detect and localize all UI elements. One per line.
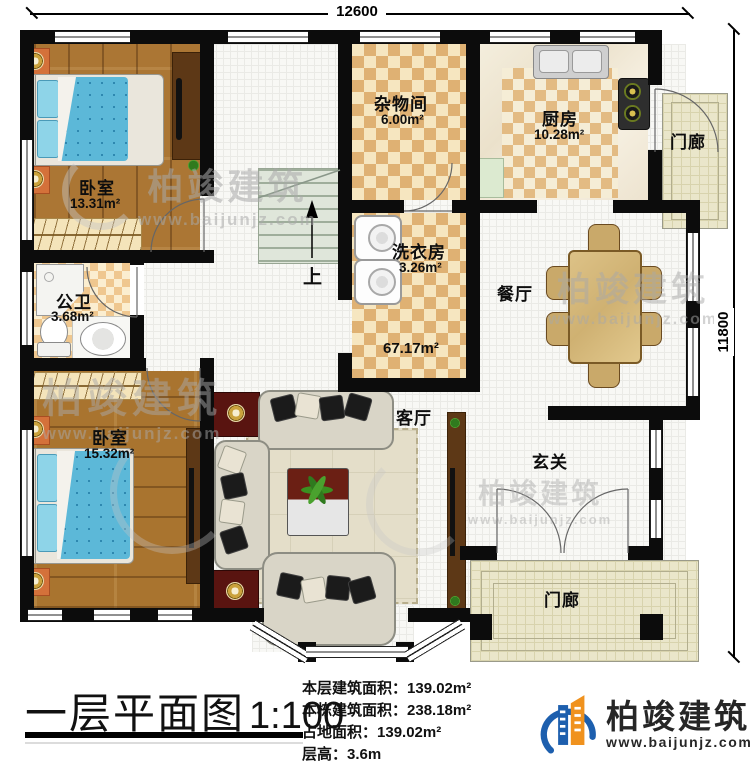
brand-logo: 柏竣建筑 www.baijunjz.com <box>540 686 750 764</box>
table-lamp <box>227 404 245 422</box>
dresser-tv <box>189 468 194 548</box>
stove-burner <box>624 83 641 100</box>
stat-row: 本层建筑面积：139.02m² <box>302 678 471 700</box>
stat-row: 层高：3.6m <box>302 744 471 766</box>
sofa-pillow <box>318 394 345 421</box>
porch-column-right <box>640 614 663 640</box>
stat-label: 本层建筑面积： <box>302 680 407 697</box>
room-area-living: 67.17m² <box>383 340 439 357</box>
tv <box>450 468 455 556</box>
title-block: 一层平面图 1:100 本层建筑面积：139.02m² 本栋建筑面积：238.1… <box>0 668 750 780</box>
wall <box>452 200 466 213</box>
wall <box>480 200 537 213</box>
coffee-table <box>287 468 349 536</box>
porch-column-left <box>470 614 492 640</box>
wall <box>338 30 352 300</box>
brand-logo-icon <box>540 686 598 764</box>
wall <box>338 378 480 392</box>
room-area-storage: 6.00m² <box>381 112 424 127</box>
title-underline <box>25 732 303 738</box>
stat-label: 占地面积： <box>302 724 377 741</box>
wall <box>352 200 404 213</box>
wall <box>548 406 700 420</box>
stat-value: 139.02m² <box>377 724 441 741</box>
window <box>580 31 635 43</box>
wardrobe <box>22 372 142 400</box>
bathroom-sink <box>80 322 126 356</box>
window <box>650 430 662 468</box>
wall <box>628 546 663 560</box>
porch-bottom <box>470 560 699 662</box>
floorplan-page: { "dimensions": { "width_label": "12600"… <box>0 0 750 780</box>
stat-value: 139.02m² <box>407 680 471 697</box>
dining-table <box>568 250 642 364</box>
window <box>55 31 130 43</box>
monitor <box>176 78 182 140</box>
washing-machine <box>354 259 402 305</box>
brand-url: www.baijunjz.com <box>606 734 750 750</box>
cabinet-plant <box>450 418 460 428</box>
room-label-foyer: 玄关 <box>532 448 568 473</box>
wall <box>20 358 146 371</box>
window <box>650 500 662 538</box>
desk-plant <box>188 160 199 171</box>
wall <box>648 150 662 213</box>
stat-value: 238.18m² <box>407 702 471 719</box>
shower-drain <box>44 272 54 282</box>
dimension-height: 11800 <box>714 308 734 356</box>
brand-name: 柏竣建筑 <box>606 700 750 734</box>
room-label-dining: 餐厅 <box>497 280 533 305</box>
room-area-laundry: 3.26m² <box>399 260 442 275</box>
stat-row: 本栋建筑面积：238.18m² <box>302 700 471 722</box>
room-label-porch-top: 门廊 <box>670 128 706 153</box>
sink-basin <box>539 50 569 73</box>
wall <box>20 250 214 263</box>
wall <box>466 30 480 392</box>
sofa-pillow <box>300 576 328 604</box>
door-opening <box>130 265 144 315</box>
bed-pillow <box>37 454 58 502</box>
room-area-bedroom2: 15.32m² <box>84 446 134 461</box>
stat-label: 本栋建筑面积： <box>302 702 407 719</box>
room-area-bathroom: 3.68m² <box>51 309 94 324</box>
window <box>158 609 192 621</box>
window <box>94 609 130 621</box>
bay-window <box>306 646 408 658</box>
window <box>228 31 308 43</box>
sofa-pillow <box>325 575 351 601</box>
wall <box>460 546 497 560</box>
bed-pillow <box>37 504 58 552</box>
room-label-porch-bottom: 门廊 <box>544 586 580 611</box>
stat-row: 占地面积：139.02m² <box>302 722 471 744</box>
table-lamp <box>226 582 244 600</box>
window <box>21 272 33 345</box>
staircase <box>258 168 340 264</box>
toilet-tank <box>37 342 71 357</box>
stairs-up-label: 上 <box>303 262 322 289</box>
room-area-kitchen: 10.28m² <box>534 127 584 142</box>
window <box>687 233 699 301</box>
stat-label: 层高： <box>302 746 347 763</box>
wall <box>200 30 214 196</box>
title-underline-light <box>25 742 303 744</box>
sofa-pillow <box>276 572 304 600</box>
window <box>21 430 33 556</box>
stove-burner <box>624 105 641 122</box>
wall <box>648 30 662 85</box>
washer-drum <box>368 268 396 296</box>
window <box>360 31 440 43</box>
window <box>490 31 550 43</box>
bed-pillow <box>37 80 59 118</box>
wall <box>200 358 214 608</box>
stat-value: 3.6m <box>347 746 381 763</box>
area-statistics: 本层建筑面积：139.02m² 本栋建筑面积：238.18m² 占地面积：139… <box>302 678 471 766</box>
wall <box>408 608 470 622</box>
sink-basin <box>572 50 602 73</box>
window <box>28 609 62 621</box>
sofa-pillow <box>218 498 245 525</box>
sofa-pillow <box>220 472 248 500</box>
window <box>21 140 33 240</box>
bed-pillow <box>37 120 59 158</box>
cabinet-plant <box>450 596 460 606</box>
room-area-bedroom1: 13.31m² <box>70 196 120 211</box>
window <box>687 328 699 396</box>
room-label-living: 客厅 <box>396 404 432 429</box>
wardrobe <box>22 218 142 252</box>
dimension-width: 12600 <box>328 2 386 22</box>
sofa-pillow <box>294 392 322 420</box>
brand-text: 柏竣建筑 www.baijunjz.com <box>606 700 750 750</box>
